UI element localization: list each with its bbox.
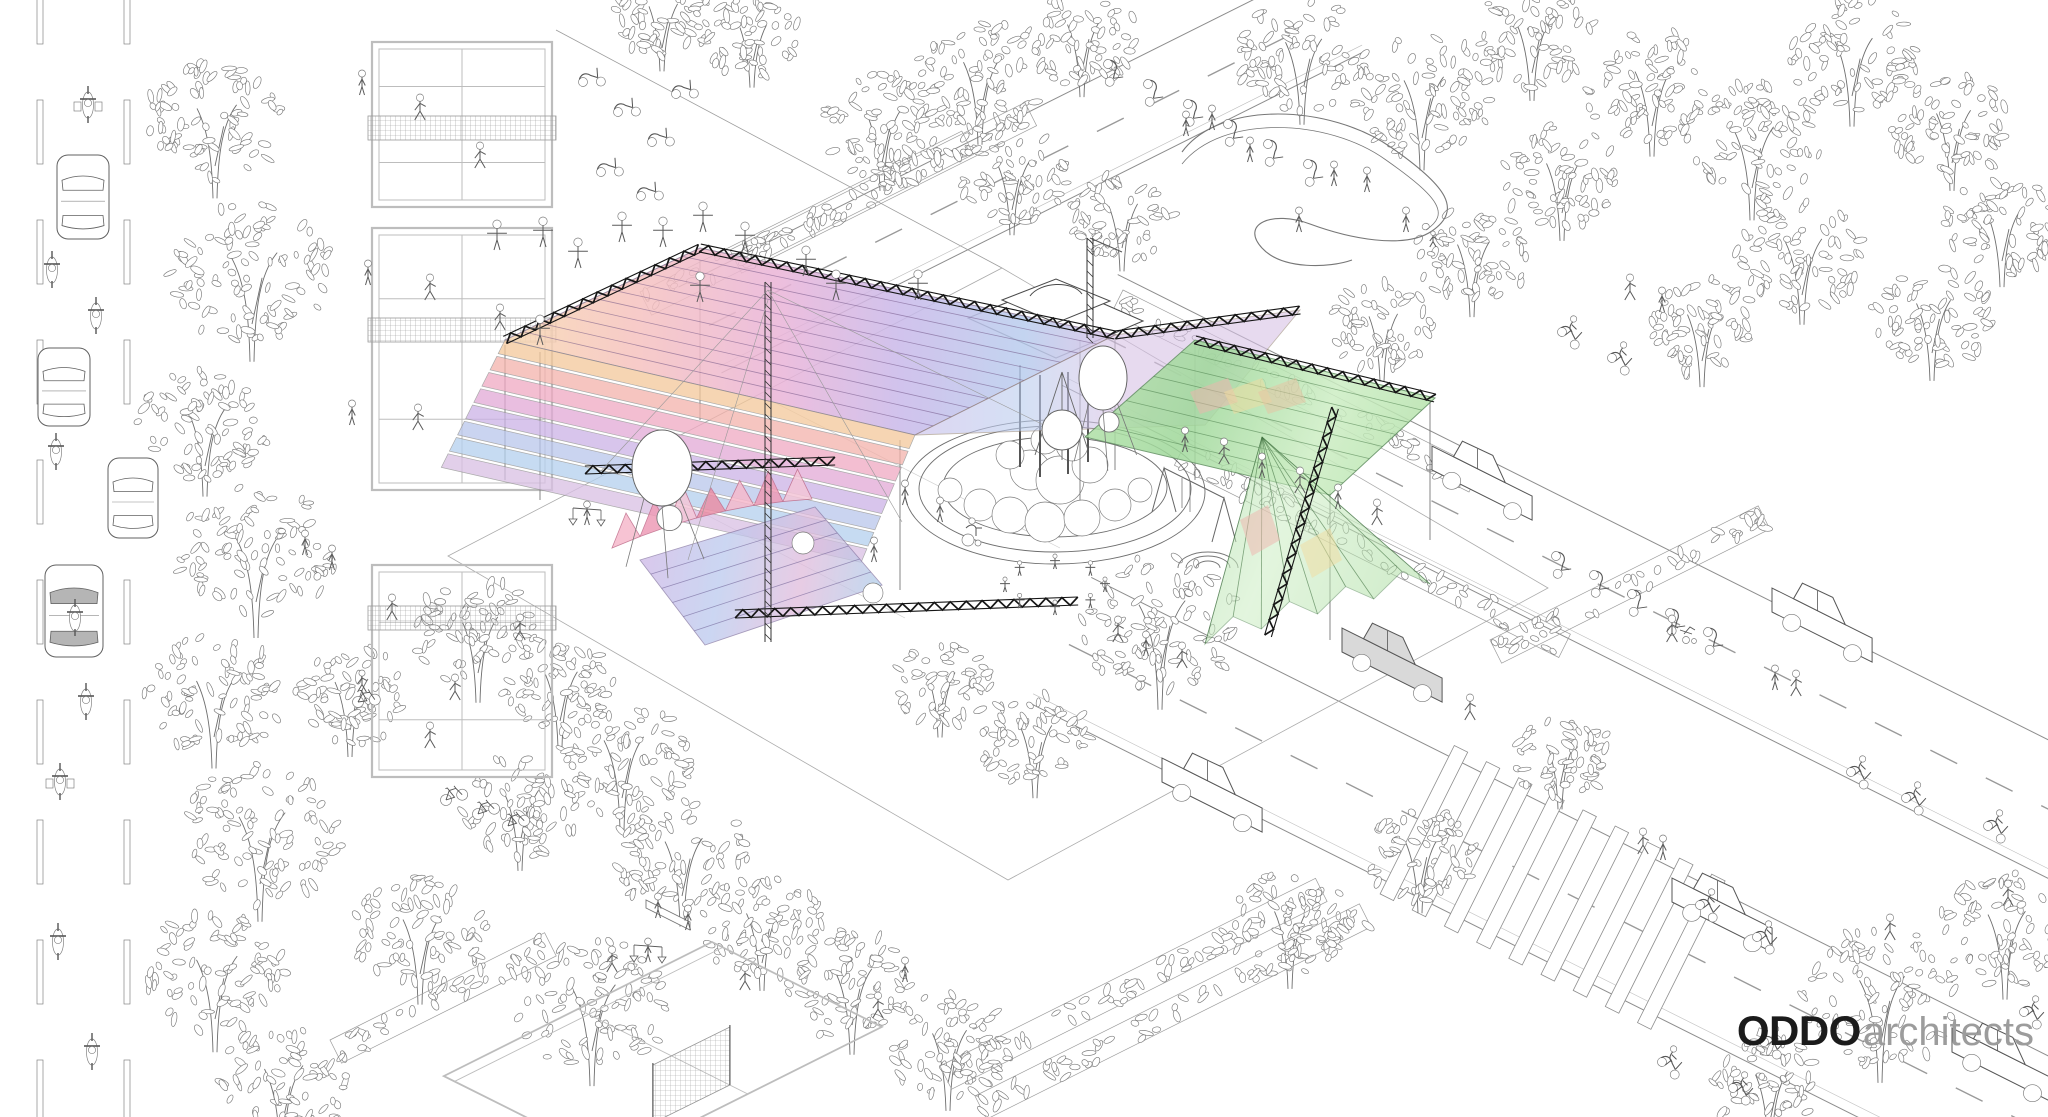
hedge-planter bbox=[940, 878, 1327, 1089]
motorbike-isometric bbox=[1135, 77, 1164, 108]
pedestrian-figure bbox=[1660, 835, 1667, 860]
pedestrian-figure bbox=[1885, 914, 1896, 940]
motorbike-isometric bbox=[1295, 157, 1324, 188]
tree bbox=[957, 129, 1071, 235]
weight-ball bbox=[863, 583, 883, 603]
tree bbox=[1731, 197, 1867, 324]
pedestrian-figure bbox=[1085, 593, 1095, 608]
street-vendor-figure bbox=[569, 501, 605, 526]
tree bbox=[1328, 276, 1436, 381]
tree bbox=[1796, 927, 1960, 1083]
car-isometric bbox=[1342, 623, 1442, 702]
pedestrian-figure bbox=[902, 480, 909, 505]
motorbike-top-view bbox=[78, 683, 94, 720]
mist-cloud bbox=[1128, 478, 1152, 502]
pedestrian-figure bbox=[1247, 137, 1254, 162]
tree bbox=[1868, 264, 1997, 380]
pedestrian-figure bbox=[1000, 577, 1010, 592]
vehicles-layer bbox=[38, 57, 2048, 1107]
mist-cloud bbox=[964, 489, 996, 521]
tree bbox=[783, 927, 916, 1055]
mist-cloud bbox=[1025, 502, 1065, 542]
pedestrian-figure bbox=[871, 537, 878, 562]
pedestrian-figure bbox=[413, 404, 424, 430]
tree bbox=[1940, 176, 2048, 288]
tree bbox=[146, 57, 285, 198]
pedestrian-figure bbox=[1085, 561, 1095, 576]
street-vendor-figure bbox=[630, 938, 666, 963]
pedestrian-figure bbox=[1791, 670, 1802, 696]
car-isometric bbox=[1162, 753, 1262, 832]
pedestrian-figure bbox=[740, 964, 751, 990]
tree bbox=[292, 644, 406, 757]
pedestrian-figure bbox=[1177, 642, 1188, 668]
tree bbox=[1683, 78, 1822, 220]
tree bbox=[697, 0, 801, 88]
pedestrian-figure bbox=[1465, 694, 1476, 720]
tree bbox=[1472, 0, 1599, 101]
pedestrian-figure bbox=[475, 142, 486, 168]
tree bbox=[610, 0, 711, 71]
tree bbox=[1067, 169, 1180, 271]
oddo-architects-logo: ODDOarchitects bbox=[1737, 1007, 2034, 1055]
pedestrian-figure bbox=[1625, 274, 1636, 300]
motorbike-isometric bbox=[669, 79, 700, 108]
tree bbox=[979, 688, 1096, 798]
tree bbox=[351, 874, 492, 1005]
pedestrian-figure bbox=[1403, 207, 1410, 232]
badminton-court-plan bbox=[368, 42, 556, 207]
site-illustration-page: ODDOarchitects bbox=[0, 0, 2048, 1117]
tree bbox=[142, 632, 283, 768]
tree bbox=[1582, 27, 1721, 157]
logo-suffix-text: architects bbox=[1863, 1010, 2034, 1055]
car-isometric bbox=[1772, 583, 1872, 662]
hedge-planter bbox=[975, 904, 1376, 1117]
mist-cloud bbox=[1064, 500, 1100, 536]
motorbike-isometric bbox=[1654, 1042, 1688, 1080]
tree bbox=[892, 641, 995, 737]
pedestrian-figure bbox=[533, 217, 553, 247]
pedestrian-figure bbox=[349, 400, 356, 425]
motorbike-top-view bbox=[88, 297, 104, 334]
motorbike-isometric bbox=[1843, 752, 1877, 790]
motorbike-isometric bbox=[611, 97, 642, 126]
logo-brand-text: ODDO bbox=[1737, 1007, 1861, 1055]
pedestrian-figure bbox=[1659, 287, 1666, 312]
motorbike-isometric bbox=[1554, 312, 1588, 350]
motorbike-isometric bbox=[1215, 117, 1244, 148]
motorbike-isometric bbox=[1898, 778, 1932, 816]
mist-cloud bbox=[1099, 489, 1131, 521]
motorbike-isometric bbox=[1255, 137, 1284, 168]
pedestrian-figure bbox=[450, 674, 461, 700]
wheelchair-user bbox=[962, 518, 982, 546]
tree bbox=[497, 638, 616, 747]
pedestrian-figure bbox=[1772, 665, 1779, 690]
pedestrian-figure bbox=[359, 70, 366, 95]
pedestrian-figure bbox=[1296, 207, 1303, 232]
pedestrian-figure bbox=[1331, 161, 1338, 186]
motorbike-isometric bbox=[1604, 338, 1638, 376]
pedestrian-figure bbox=[1372, 499, 1383, 525]
greenery-layer bbox=[133, 0, 2048, 1117]
pedestrian-figure bbox=[425, 722, 436, 748]
motorbike-isometric bbox=[1175, 97, 1204, 128]
car-top-view bbox=[38, 348, 90, 426]
pedestrian-figure bbox=[584, 501, 591, 525]
pedestrian-figure bbox=[1050, 554, 1060, 569]
weight-ball bbox=[792, 532, 814, 554]
site-axonometric-illustration bbox=[0, 0, 2048, 1117]
pedestrian-figure bbox=[425, 274, 436, 300]
pedestrian-figure bbox=[612, 212, 632, 242]
motorbike-top-view bbox=[50, 923, 66, 960]
bicycle bbox=[437, 783, 469, 807]
tree bbox=[1887, 71, 2009, 191]
mist-cloud bbox=[992, 497, 1028, 533]
motorbike-top-view bbox=[84, 1033, 100, 1070]
hedge-planter bbox=[330, 932, 556, 1063]
pedestrian-figure bbox=[365, 260, 372, 285]
motorbike-isometric bbox=[634, 181, 665, 210]
pedestrian-figure bbox=[1364, 167, 1371, 192]
tree bbox=[163, 201, 334, 362]
car-top-view bbox=[108, 458, 158, 538]
motorbike-top-view bbox=[48, 433, 64, 470]
motorbike-isometric bbox=[1980, 806, 2014, 844]
tree bbox=[1350, 33, 1495, 171]
curved-bench bbox=[1182, 114, 1447, 266]
motorbike-isometric bbox=[594, 157, 625, 186]
motorbike-top-view bbox=[74, 86, 102, 123]
motorbike-top-view bbox=[46, 763, 74, 800]
tree bbox=[555, 705, 695, 831]
motorbike-top-view bbox=[44, 251, 60, 288]
motorbike-isometric bbox=[1581, 568, 1610, 599]
pedestrian-figure bbox=[568, 238, 588, 268]
tree bbox=[173, 483, 338, 638]
motorbike-isometric bbox=[645, 127, 676, 156]
pedestrian-figure bbox=[693, 202, 713, 232]
tree bbox=[1412, 206, 1528, 317]
tree bbox=[1020, 0, 1140, 97]
tree bbox=[144, 909, 291, 1052]
pedestrian-figure bbox=[937, 497, 944, 522]
motorbike-isometric bbox=[576, 67, 607, 96]
pedestrian-figure bbox=[653, 217, 673, 247]
pedestrian-figure bbox=[1015, 561, 1025, 576]
car-top-view bbox=[57, 155, 109, 239]
tree bbox=[183, 760, 346, 922]
canopy-installation-layer bbox=[441, 238, 1436, 645]
